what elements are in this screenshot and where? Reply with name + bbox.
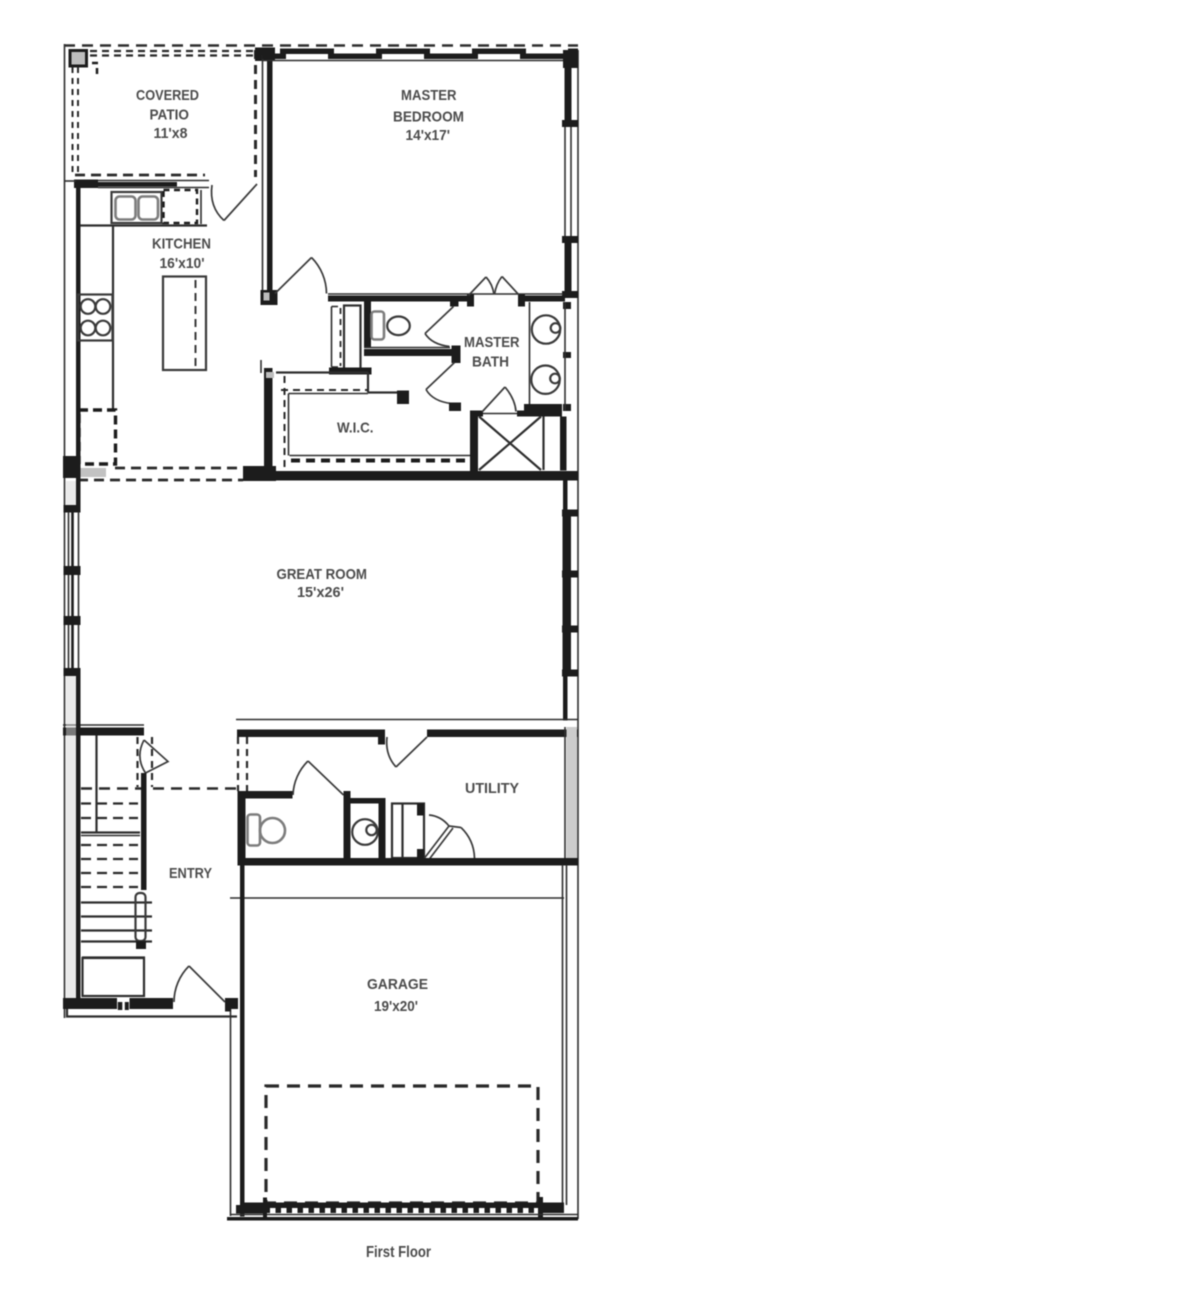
svg-text:ENTRY: ENTRY: [169, 865, 212, 882]
svg-text:14'x17': 14'x17': [406, 128, 451, 144]
svg-text:BATH: BATH: [472, 354, 509, 371]
svg-text:GARAGE: GARAGE: [367, 976, 428, 993]
svg-text:BEDROOM: BEDROOM: [393, 109, 464, 126]
svg-text:11'x8: 11'x8: [154, 126, 188, 142]
svg-text:PATIO: PATIO: [150, 107, 190, 124]
svg-text:KITCHEN: KITCHEN: [152, 236, 211, 253]
svg-text:UTILITY: UTILITY: [465, 780, 519, 797]
svg-text:COVERED: COVERED: [136, 87, 199, 104]
svg-text:19'x20': 19'x20': [374, 999, 418, 1015]
svg-text:MASTER: MASTER: [401, 87, 457, 104]
svg-text:15'x26': 15'x26': [297, 585, 344, 601]
svg-text:16'x10': 16'x10': [160, 256, 205, 272]
svg-text:W.I.C.: W.I.C.: [337, 420, 374, 437]
svg-text:GREAT ROOM: GREAT ROOM: [277, 566, 368, 583]
svg-text:First Floor: First Floor: [366, 1244, 431, 1261]
svg-text:MASTER: MASTER: [464, 334, 520, 351]
